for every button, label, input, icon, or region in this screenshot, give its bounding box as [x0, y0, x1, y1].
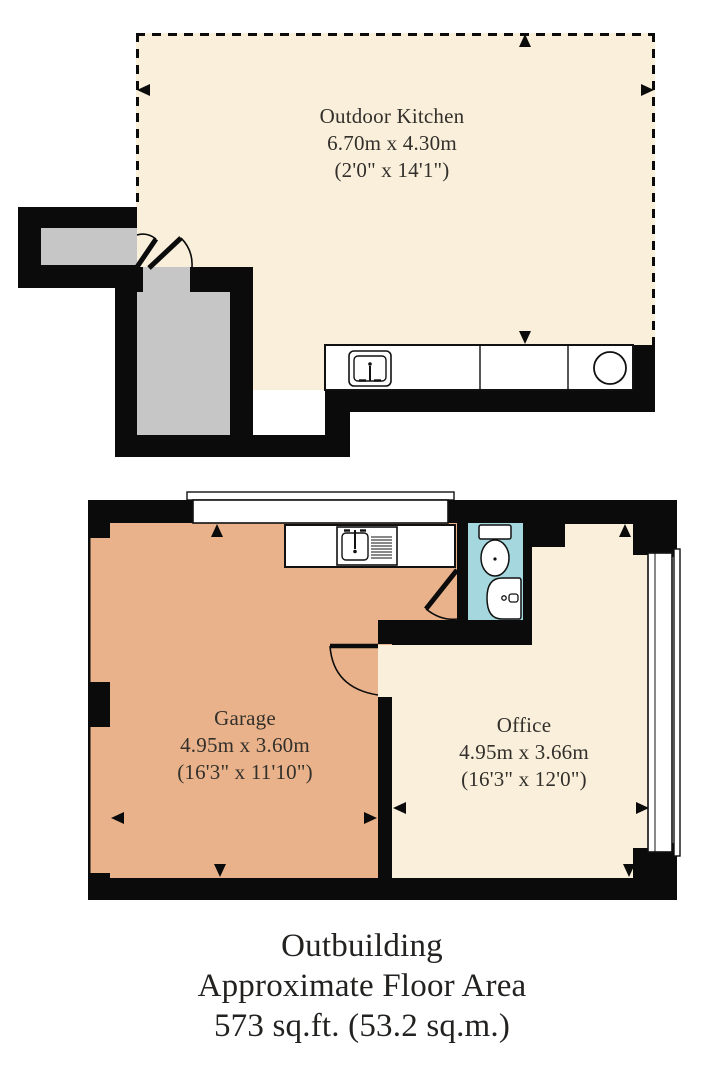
- garage-door-opening: [88, 538, 110, 682]
- room-dims-metric: 4.95m x 3.60m: [177, 732, 313, 759]
- garage-floor: [110, 523, 392, 878]
- wall: [325, 390, 655, 412]
- window-icon: [648, 549, 680, 856]
- wall: [115, 435, 350, 457]
- room-name: Office: [459, 712, 589, 739]
- caption-subtitle: Approximate Floor Area: [0, 966, 716, 1006]
- room-dims-metric: 6.70m x 4.30m: [320, 130, 465, 157]
- window-icon: [187, 492, 454, 523]
- garage-label: Garage 4.95m x 3.60m (16'3" x 11'10"): [177, 705, 313, 786]
- toilet-icon: [479, 525, 511, 576]
- lower-plan: [88, 492, 680, 900]
- wall: [457, 523, 468, 568]
- room-dims-metric: 4.95m x 3.66m: [459, 739, 589, 766]
- garage-door-opening: [88, 727, 110, 873]
- opening-edge-line: [88, 727, 91, 873]
- floorplan-page: Outdoor Kitchen 6.70m x 4.30m (2'0" x 14…: [0, 0, 716, 1080]
- divider-wall: [378, 697, 392, 878]
- corridor-floor: [41, 228, 137, 265]
- plan-caption: Outbuilding Approximate Floor Area 573 s…: [0, 926, 716, 1046]
- wall: [378, 620, 532, 644]
- wall: [633, 345, 655, 412]
- room-name: Outdoor Kitchen: [320, 103, 465, 130]
- room-name: Garage: [177, 705, 313, 732]
- opening-edge-line: [88, 538, 91, 682]
- counter: [325, 345, 633, 390]
- store-door-opening: [143, 267, 190, 292]
- office-label: Office 4.95m x 3.66m (16'3" x 12'0"): [459, 712, 589, 793]
- doorway-floor: [378, 645, 392, 697]
- hob-icon: [594, 352, 626, 384]
- room-dims-imperial: (16'3" x 12'0"): [459, 766, 589, 793]
- caption-area: 573 sq.ft. (53.2 sq.m.): [0, 1006, 716, 1046]
- room-dims-imperial: (2'0" x 14'1"): [320, 157, 465, 184]
- upper-plan: [18, 33, 655, 457]
- room-dims-imperial: (16'3" x 11'10"): [177, 759, 313, 786]
- caption-title: Outbuilding: [0, 926, 716, 966]
- sink-drainer-icon: [337, 527, 397, 565]
- outdoor-kitchen-label: Outdoor Kitchen 6.70m x 4.30m (2'0" x 14…: [320, 103, 465, 184]
- store-floor: [137, 292, 230, 435]
- counter: [285, 525, 455, 567]
- basin-icon: [487, 578, 521, 619]
